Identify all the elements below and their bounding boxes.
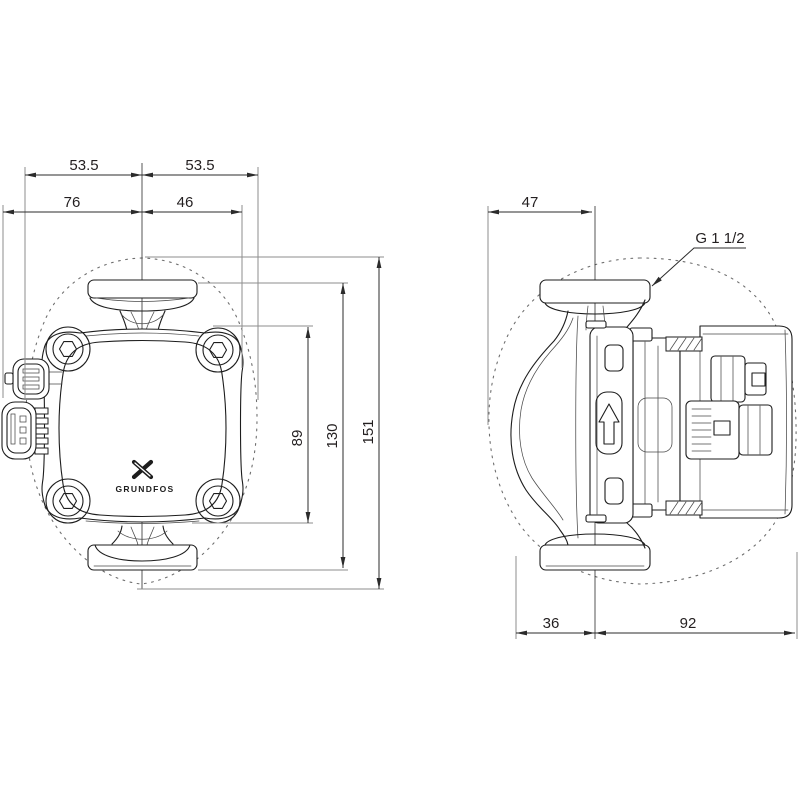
arrowhead: [306, 512, 311, 523]
dim-label-flange-right: 53.5: [185, 157, 214, 174]
arrowhead: [231, 210, 242, 215]
side-view: [489, 206, 796, 639]
arrowhead: [142, 210, 153, 215]
dim-label-left-of-center: 76: [64, 194, 81, 211]
arrowhead: [377, 578, 382, 589]
dim-label-housing-height: 89: [289, 430, 306, 447]
side-stator-housing: [633, 338, 680, 510]
dim-label-overall-height: 151: [360, 419, 377, 444]
dim-widths: 76 46: [3, 194, 242, 214]
side-bottom-connector: [686, 401, 772, 459]
grundfos-logo-text: GRUNDFOS: [115, 484, 174, 494]
front-bottom-port-flange: [88, 526, 197, 570]
arrowhead: [247, 173, 258, 178]
thread-size-label: G 1 1/2: [695, 230, 744, 247]
dim-housing-height: 89: [289, 327, 310, 523]
arrowhead: [377, 257, 382, 268]
dim-label-right-of-center: 46: [177, 194, 194, 211]
front-power-plug-connector: [2, 402, 48, 459]
arrowhead: [341, 557, 346, 568]
front-view: GRUNDFOS: [2, 163, 257, 589]
dim-flange-offsets: 53.5 53.5: [25, 157, 258, 177]
dim-overall-height: 151: [360, 257, 381, 589]
dim-label-flange-left: 53.5: [69, 157, 98, 174]
arrowhead: [142, 173, 153, 178]
side-volute: [511, 311, 578, 545]
dim-label-flange-to-flange: 130: [324, 423, 341, 448]
dim-label-center-to-front: 36: [543, 615, 560, 632]
dim-depths: 36 92: [516, 615, 795, 635]
arrowhead: [581, 210, 592, 215]
side-top-connector: [711, 356, 766, 402]
thread-size-callout: G 1 1/2: [652, 230, 746, 286]
arrowhead: [341, 283, 346, 294]
dim-front-to-center: 47: [488, 194, 592, 214]
side-pump-head-plate: [586, 321, 633, 523]
dim-flange-to-flange: 130: [324, 283, 345, 568]
arrowhead: [25, 173, 36, 178]
arrowhead: [784, 631, 795, 636]
arrowhead: [131, 173, 142, 178]
arrowhead: [306, 327, 311, 338]
arrowhead: [516, 631, 527, 636]
arrowhead: [584, 631, 595, 636]
pump-dimensional-drawing: GRUNDFOS: [0, 0, 800, 800]
dim-label-front-to-center: 47: [522, 194, 539, 211]
arrowhead: [595, 631, 606, 636]
drawing-svg: GRUNDFOS: [0, 0, 800, 800]
arrowhead: [131, 210, 142, 215]
front-top-port-flange: [88, 280, 197, 331]
dim-label-center-to-rear: 92: [680, 615, 697, 632]
arrowhead: [488, 210, 499, 215]
arrowhead: [3, 210, 14, 215]
